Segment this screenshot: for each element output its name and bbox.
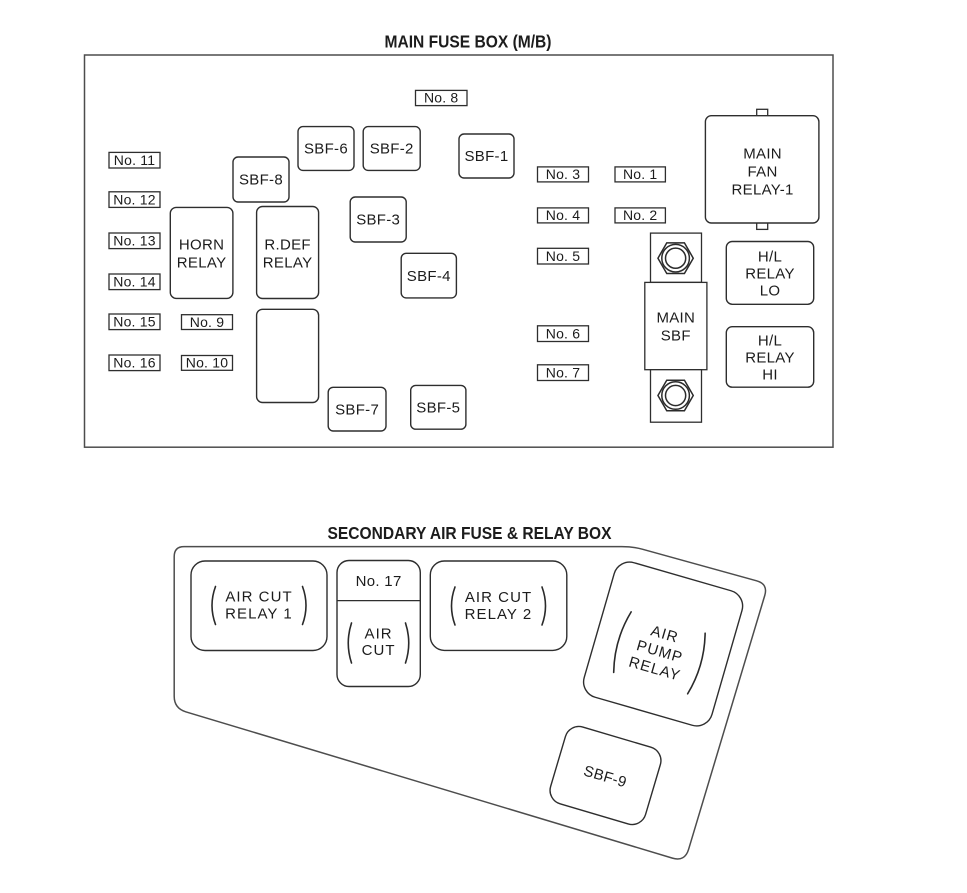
svg-text:No. 3: No. 3: [546, 166, 580, 182]
svg-text:No. 1: No. 1: [623, 166, 657, 182]
svg-text:AIR CUT: AIR CUT: [465, 589, 532, 606]
svg-text:No. 2: No. 2: [623, 207, 657, 223]
svg-text:SBF-3: SBF-3: [356, 212, 400, 229]
svg-text:MAIN: MAIN: [656, 310, 695, 327]
svg-text:SBF-6: SBF-6: [304, 141, 348, 158]
svg-text:MAIN FUSE BOX (M/B): MAIN FUSE BOX (M/B): [385, 31, 552, 51]
svg-text:SBF: SBF: [661, 328, 691, 345]
svg-text:No. 12: No. 12: [113, 191, 155, 207]
svg-text:No. 17: No. 17: [356, 573, 402, 590]
svg-text:SBF-7: SBF-7: [335, 401, 379, 418]
svg-text:FAN: FAN: [748, 164, 778, 181]
svg-text:No. 11: No. 11: [114, 152, 155, 168]
svg-text:No. 8: No. 8: [424, 90, 458, 106]
svg-text:RELAY: RELAY: [177, 255, 227, 272]
svg-text:SBF-2: SBF-2: [370, 141, 414, 158]
svg-text:AIR: AIR: [365, 626, 393, 643]
svg-text:HORN: HORN: [179, 237, 224, 254]
svg-text:HI: HI: [762, 367, 778, 384]
svg-text:No. 6: No. 6: [546, 325, 580, 341]
svg-text:CUT: CUT: [362, 642, 396, 659]
svg-text:LO: LO: [760, 282, 781, 299]
svg-text:SBF-5: SBF-5: [416, 400, 460, 417]
svg-text:H/L: H/L: [758, 248, 782, 265]
svg-text:No. 10: No. 10: [186, 355, 228, 371]
svg-text:RELAY: RELAY: [745, 350, 795, 367]
svg-text:SECONDARY AIR FUSE & RELAY BOX: SECONDARY AIR FUSE & RELAY BOX: [328, 523, 612, 543]
svg-text:No. 7: No. 7: [546, 364, 580, 380]
svg-text:No. 5: No. 5: [546, 248, 580, 264]
svg-text:No. 9: No. 9: [190, 314, 224, 330]
svg-text:AIR CUT: AIR CUT: [225, 589, 292, 606]
svg-text:No. 14: No. 14: [113, 274, 155, 290]
svg-text:RELAY-1: RELAY-1: [732, 182, 794, 199]
svg-text:No. 15: No. 15: [113, 314, 155, 330]
svg-text:SBF-8: SBF-8: [239, 172, 283, 189]
svg-text:MAIN: MAIN: [743, 146, 782, 163]
svg-text:RELAY: RELAY: [263, 255, 313, 272]
svg-text:No. 13: No. 13: [113, 233, 155, 249]
svg-text:RELAY 1: RELAY 1: [225, 606, 293, 623]
svg-text:H/L: H/L: [758, 333, 782, 350]
svg-text:RELAY: RELAY: [745, 265, 795, 282]
svg-text:No. 4: No. 4: [546, 207, 580, 223]
svg-text:SBF-1: SBF-1: [464, 148, 508, 165]
svg-text:No. 16: No. 16: [113, 355, 155, 371]
svg-text:R.DEF: R.DEF: [264, 237, 311, 254]
svg-text:RELAY 2: RELAY 2: [465, 606, 533, 623]
svg-text:SBF-4: SBF-4: [407, 268, 451, 285]
